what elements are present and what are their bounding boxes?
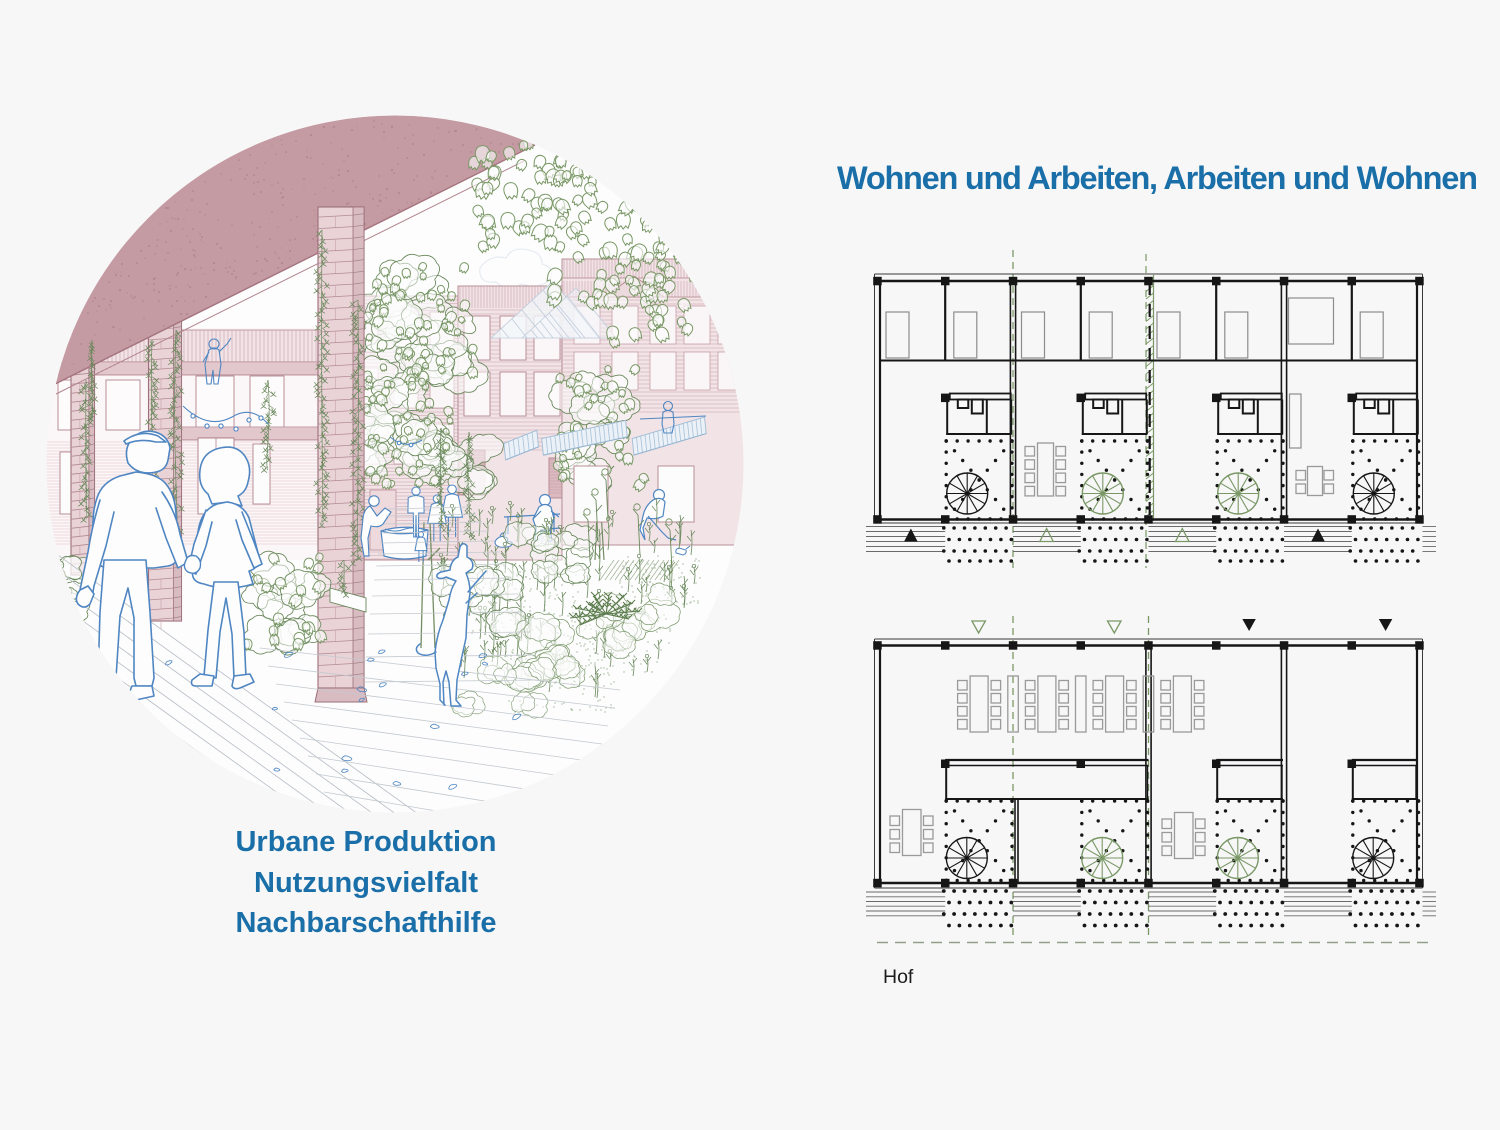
svg-text:Hof: Hof: [883, 966, 914, 988]
svg-text:Nachbarschafthilfe: Nachbarschafthilfe: [235, 907, 496, 939]
svg-text:Urbane Produktion: Urbane Produktion: [235, 826, 496, 858]
svg-text:Wohnen und Arbeiten, Arbeiten: Wohnen und Arbeiten, Arbeiten und Wohnen: [837, 160, 1477, 196]
svg-text:Nutzungsvielfalt: Nutzungsvielfalt: [254, 867, 478, 899]
